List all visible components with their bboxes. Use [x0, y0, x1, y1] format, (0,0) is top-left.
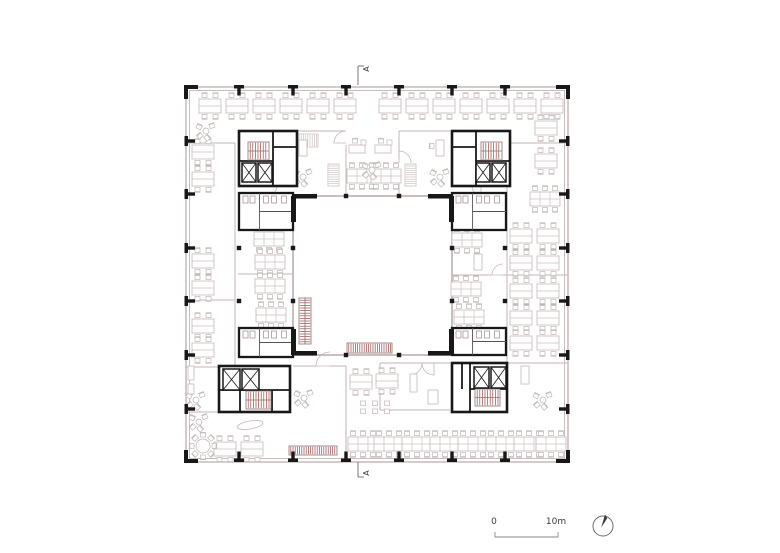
- desk-cluster: [375, 138, 392, 153]
- wc-core: [452, 328, 506, 355]
- desk-cluster: [537, 330, 559, 356]
- scale-ten-label: 10m: [546, 517, 566, 527]
- wc-core: [452, 193, 506, 230]
- desk-cluster: [192, 248, 214, 274]
- desk-cluster: [294, 389, 314, 408]
- lounge-canoe-table: [237, 419, 264, 431]
- desk-cluster: [192, 166, 214, 192]
- desk-cluster: [487, 93, 509, 119]
- desk-cluster: [379, 93, 401, 119]
- section-marker-top: A: [358, 66, 371, 85]
- desk-cluster: [196, 122, 216, 141]
- desk-cluster: [430, 431, 460, 457]
- desk-cluster: [349, 138, 366, 153]
- desk-cluster: [199, 93, 221, 119]
- desk-cluster: [510, 250, 532, 276]
- core-top-left: [239, 131, 297, 186]
- desk-cluster: [510, 223, 532, 249]
- desk-cluster: [350, 369, 372, 395]
- core-bottom-right: [452, 363, 507, 412]
- desk-cluster: [348, 431, 378, 457]
- drawing-sheet: AA010m: [0, 0, 780, 553]
- desk-cluster: [253, 93, 275, 119]
- desk-cluster: [537, 250, 559, 276]
- section-label: A: [362, 470, 371, 476]
- desk-cluster: [510, 278, 532, 304]
- desk-cluster: [429, 140, 444, 156]
- desk-cluster: [255, 249, 285, 275]
- desk-cluster: [454, 304, 484, 330]
- section-label: A: [362, 66, 371, 72]
- desk-cluster: [458, 431, 488, 457]
- scale-bar: 010m: [491, 517, 566, 537]
- desk-cluster: [510, 305, 532, 331]
- desk-cluster: [256, 302, 286, 328]
- desk-cluster: [192, 313, 214, 339]
- desk-cluster: [192, 275, 214, 301]
- desk-cluster: [255, 273, 285, 299]
- desk-cluster: [226, 93, 248, 119]
- desk-cluster: [510, 330, 532, 356]
- section-marker-bottom: A: [358, 462, 371, 477]
- desk-cluster: [406, 93, 428, 119]
- desk-cluster: [192, 337, 214, 363]
- desk-cluster: [430, 168, 450, 187]
- desk-cluster: [537, 223, 559, 249]
- desk-cluster: [280, 93, 302, 119]
- desk-cluster: [307, 93, 329, 119]
- desk-cluster: [361, 401, 390, 414]
- desk-cluster: [533, 391, 553, 410]
- desk-cluster: [334, 93, 356, 119]
- desk-cluster: [486, 431, 516, 457]
- north-arrow-icon: [593, 515, 613, 537]
- desk-cluster: [402, 431, 432, 457]
- floor-plan-svg: AA010m: [0, 0, 780, 553]
- desk-cluster: [451, 276, 481, 302]
- desk-cluster: [514, 93, 536, 119]
- desk-cluster: [376, 368, 398, 394]
- desk-cluster: [433, 93, 455, 119]
- desk-cluster: [535, 148, 557, 174]
- courtyard: [293, 196, 452, 355]
- desk-cluster: [537, 305, 559, 331]
- scale-zero-label: 0: [491, 517, 497, 527]
- wc-core: [239, 193, 293, 230]
- desk-cluster: [537, 278, 559, 304]
- desk-cluster: [530, 186, 560, 212]
- core-top-right: [452, 131, 510, 186]
- desk-cluster: [536, 431, 566, 457]
- wc-core: [239, 328, 293, 357]
- desk-cluster: [189, 413, 209, 432]
- core-bottom-left: [219, 366, 290, 412]
- desk-cluster: [189, 432, 216, 459]
- desk-cluster: [460, 93, 482, 119]
